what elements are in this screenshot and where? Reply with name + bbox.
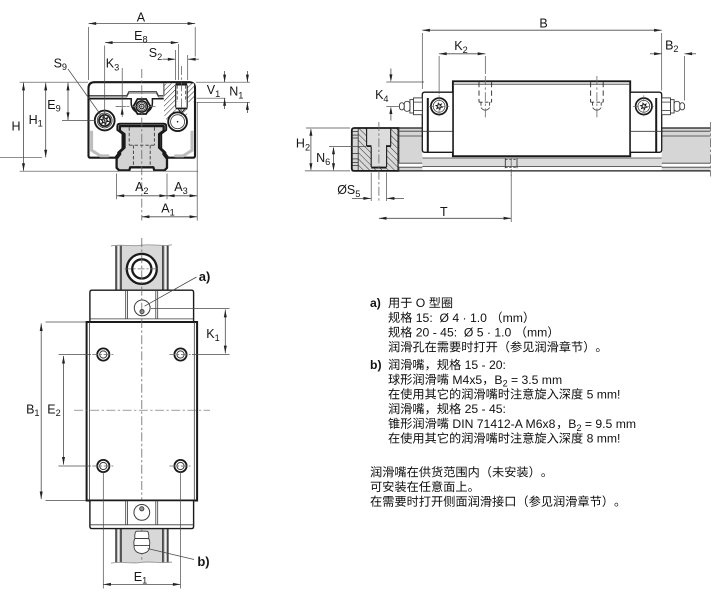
svg-text:5 mm!: 5 mm!	[583, 388, 620, 402]
svg-text:B: B	[494, 373, 502, 387]
svg-text:T: T	[440, 205, 448, 219]
svg-text:mm: mm	[527, 326, 547, 340]
svg-text:DIN 71412-A M6x8: DIN 71412-A M6x8	[449, 417, 556, 431]
svg-text:B: B	[568, 417, 576, 431]
svg-text:O: O	[412, 296, 428, 310]
svg-text:15: Ø 4 · 1.0: 15: Ø 4 · 1.0	[412, 311, 490, 325]
svg-text:15 - 20:: 15 - 20:	[461, 358, 506, 372]
svg-text:a): a)	[370, 296, 381, 310]
svg-text:M4x5: M4x5	[449, 373, 482, 387]
svg-text:20 - 45: Ø 5 · 1.0: 20 - 45: Ø 5 · 1.0	[412, 326, 514, 340]
svg-text:A: A	[137, 10, 146, 24]
svg-text:= 9.5 mm: = 9.5 mm	[582, 417, 637, 431]
svg-text:b): b)	[370, 358, 382, 372]
svg-text:= 3.5 mm: = 3.5 mm	[508, 373, 563, 387]
svg-text:H: H	[11, 119, 20, 133]
svg-text:8 mm!: 8 mm!	[583, 432, 620, 446]
svg-text:B: B	[539, 17, 547, 31]
svg-text:25 - 45:: 25 - 45:	[461, 402, 506, 416]
svg-text:a): a)	[199, 269, 211, 284]
svg-text:mm: mm	[503, 311, 523, 325]
svg-text:b): b)	[197, 554, 209, 569]
